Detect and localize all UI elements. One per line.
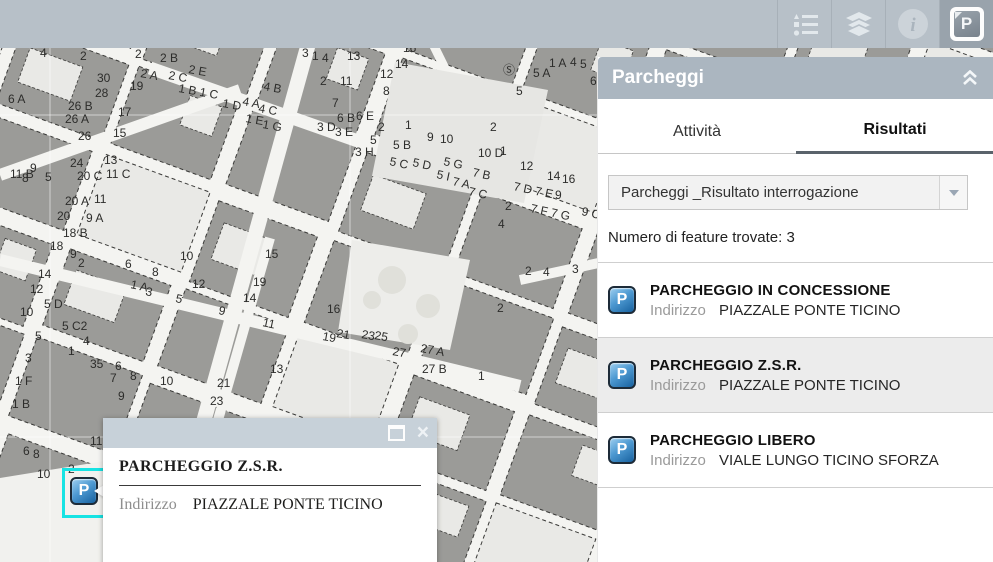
dropdown-button[interactable] — [939, 176, 967, 209]
svg-text:7: 7 — [110, 371, 117, 385]
svg-text:10: 10 — [160, 374, 174, 388]
info-icon: i — [897, 8, 929, 40]
svg-text:9: 9 — [30, 161, 37, 175]
svg-text:10: 10 — [440, 132, 454, 146]
svg-text:21: 21 — [217, 376, 231, 390]
svg-text:16: 16 — [403, 48, 417, 55]
svg-text:15: 15 — [265, 247, 279, 261]
popup-body: PARCHEGGIO Z.S.R. Indirizzo PIAZZALE PON… — [103, 448, 437, 562]
svg-text:6 B: 6 B — [337, 111, 355, 125]
panel-tabs: Attività Risultati — [598, 100, 993, 154]
layers-icon — [845, 11, 873, 37]
svg-text:15: 15 — [113, 126, 127, 140]
svg-text:12: 12 — [30, 282, 44, 296]
map-popup: × PARCHEGGIO Z.S.R. Indirizzo PIAZZALE P… — [103, 418, 437, 562]
toolbar-buttons: i P — [777, 0, 993, 48]
address-value: VIALE LUNGO TICINO SFORZA — [719, 452, 939, 469]
svg-text:5: 5 — [45, 170, 52, 184]
svg-text:13: 13 — [104, 153, 118, 167]
tab-attivita[interactable]: Attività — [598, 100, 796, 154]
svg-text:2: 2 — [505, 199, 512, 213]
svg-text:20: 20 — [57, 209, 71, 223]
result-texts: PARCHEGGIO IN CONCESSIONE Indirizzo PIAZ… — [650, 282, 900, 319]
svg-text:6: 6 — [590, 74, 597, 88]
svg-text:12: 12 — [192, 277, 206, 291]
parking-icon: P — [608, 286, 636, 314]
svg-text:3: 3 — [25, 351, 32, 365]
svg-text:21: 21 — [335, 326, 351, 342]
svg-text:20 C: 20 C — [77, 169, 103, 183]
svg-text:13: 13 — [347, 49, 361, 63]
svg-text:18: 18 — [50, 239, 64, 253]
svg-text:10: 10 — [20, 305, 34, 319]
top-toolbar: i P — [0, 0, 993, 48]
svg-text:4: 4 — [83, 334, 90, 348]
info-button[interactable]: i — [885, 0, 939, 48]
svg-text:20 A: 20 A — [65, 194, 89, 208]
result-texts: PARCHEGGIO Z.S.R. Indirizzo PIAZZALE PON… — [650, 357, 900, 394]
legend-button[interactable] — [777, 0, 831, 48]
svg-text:14: 14 — [243, 291, 257, 305]
svg-text:1: 1 — [68, 344, 75, 358]
svg-text:4: 4 — [543, 265, 550, 279]
svg-text:25: 25 — [373, 328, 389, 344]
tab-risultati[interactable]: Risultati — [796, 100, 993, 154]
svg-text:3: 3 — [572, 262, 579, 276]
address-label: Indirizzo — [650, 377, 706, 394]
address-label: Indirizzo — [650, 452, 706, 469]
panel-title: Parcheggi — [612, 67, 704, 89]
svg-text:7: 7 — [332, 96, 339, 110]
address-value: PIAZZALE PONTE TICINO — [719, 377, 900, 394]
svg-text:2: 2 — [135, 48, 142, 61]
svg-text:3 H: 3 H — [355, 145, 374, 159]
svg-text:12: 12 — [520, 159, 534, 173]
svg-text:16: 16 — [327, 302, 341, 316]
svg-text:Ⓢ: Ⓢ — [503, 63, 515, 77]
svg-text:5: 5 — [580, 57, 587, 71]
result-title: PARCHEGGIO IN CONCESSIONE — [650, 282, 900, 299]
svg-text:3 E: 3 E — [335, 125, 353, 139]
svg-text:2: 2 — [80, 49, 87, 63]
svg-text:26: 26 — [78, 129, 92, 143]
svg-text:30: 30 — [97, 71, 111, 85]
svg-text:5: 5 — [35, 329, 42, 343]
svg-text:8: 8 — [152, 265, 159, 279]
svg-text:28: 28 — [95, 86, 109, 100]
svg-text:5: 5 — [516, 84, 523, 98]
svg-text:11: 11 — [90, 434, 103, 448]
svg-text:2: 2 — [78, 256, 85, 270]
svg-text:19: 19 — [253, 275, 267, 289]
result-texts: PARCHEGGIO LIBERO Indirizzo VIALE LUNGO … — [650, 432, 939, 469]
result-address-row: Indirizzo PIAZZALE PONTE TICINO — [650, 302, 900, 319]
svg-text:1 F: 1 F — [15, 374, 32, 388]
result-item[interactable]: P PARCHEGGIO IN CONCESSIONE Indirizzo PI… — [598, 263, 993, 338]
svg-text:35: 35 — [90, 357, 104, 371]
svg-text:4: 4 — [498, 217, 505, 231]
address-value: PIAZZALE PONTE TICINO — [719, 302, 900, 319]
legend-list-icon — [791, 11, 819, 37]
svg-text:1: 1 — [405, 118, 412, 132]
svg-text:9: 9 — [427, 130, 434, 144]
result-title: PARCHEGGIO Z.S.R. — [650, 357, 900, 374]
svg-text:14: 14 — [395, 57, 409, 71]
results-dropdown-value: Parcheggi _Risultato interrogazione — [609, 176, 939, 209]
svg-text:18 B: 18 B — [63, 226, 88, 240]
svg-text:16: 16 — [562, 172, 576, 186]
chevron-down-icon — [949, 190, 959, 196]
svg-text:23: 23 — [210, 394, 224, 408]
svg-text:1: 1 — [500, 144, 507, 158]
svg-text:3 D: 3 D — [317, 120, 336, 134]
svg-text:9 A: 9 A — [86, 211, 103, 225]
svg-text:8: 8 — [22, 171, 29, 185]
svg-text:i: i — [910, 15, 916, 36]
svg-text:26 A: 26 A — [65, 112, 89, 126]
svg-text:6: 6 — [125, 257, 132, 271]
svg-text:11: 11 — [94, 192, 107, 206]
panel-header: Parcheggi — [598, 57, 993, 99]
svg-text:4: 4 — [570, 55, 577, 69]
svg-text:2 A: 2 A — [139, 66, 159, 83]
chevrons-up-icon — [962, 70, 978, 86]
svg-text:8: 8 — [383, 84, 390, 98]
svg-text:4: 4 — [40, 48, 47, 60]
svg-text:14: 14 — [38, 267, 52, 281]
results-list: P PARCHEGGIO IN CONCESSIONE Indirizzo PI… — [598, 262, 993, 488]
result-item[interactable]: P PARCHEGGIO LIBERO Indirizzo VIALE LUNG… — [598, 413, 993, 488]
parcheggi-panel: Parcheggi Attività Risultati Parcheggi _… — [597, 57, 993, 562]
popup-address-row: Indirizzo PIAZZALE PONTE TICINO — [119, 496, 421, 514]
popup-title: PARCHEGGIO Z.S.R. — [119, 458, 421, 476]
svg-text:2: 2 — [320, 74, 327, 88]
feature-count: Numero di feature trovate: 3 — [608, 229, 984, 246]
close-icon[interactable]: × — [417, 422, 429, 443]
svg-text:3: 3 — [302, 48, 309, 60]
result-address-row: Indirizzo VIALE LUNGO TICINO SFORZA — [650, 452, 939, 469]
result-address-row: Indirizzo PIAZZALE PONTE TICINO — [650, 377, 900, 394]
maximize-icon[interactable] — [388, 425, 405, 441]
svg-text:27: 27 — [391, 344, 407, 360]
address-value: PIAZZALE PONTE TICINO — [193, 496, 383, 513]
svg-text:5 A: 5 A — [533, 66, 550, 80]
svg-text:6 E: 6 E — [356, 109, 374, 123]
svg-text:1 A: 1 A — [549, 56, 566, 70]
svg-text:9: 9 — [70, 247, 77, 261]
svg-text:9: 9 — [118, 389, 125, 403]
svg-text:24: 24 — [70, 156, 84, 170]
parking-icon: P — [608, 361, 636, 389]
parking-tool-icon: P — [950, 7, 984, 41]
svg-text:5 B: 5 B — [393, 138, 411, 152]
svg-text:5 D: 5 D — [44, 297, 63, 311]
svg-text:8: 8 — [130, 369, 137, 383]
svg-text:6 A: 6 A — [8, 92, 25, 106]
svg-text:1: 1 — [478, 369, 485, 383]
results-dropdown[interactable]: Parcheggi _Risultato interrogazione — [608, 175, 968, 210]
parcheggi-tool-button[interactable]: P — [939, 0, 993, 48]
address-label: Indirizzo — [650, 302, 706, 319]
svg-text:4: 4 — [322, 51, 329, 65]
result-item[interactable]: P PARCHEGGIO Z.S.R. Indirizzo PIAZZALE P… — [598, 338, 993, 413]
popup-header: × — [103, 418, 437, 448]
collapse-panel-button[interactable] — [962, 70, 978, 86]
svg-text:2: 2 — [497, 301, 504, 315]
svg-text:2: 2 — [378, 120, 385, 134]
svg-text:19: 19 — [130, 79, 144, 93]
svg-text:2: 2 — [525, 264, 532, 278]
svg-text:10: 10 — [37, 467, 51, 481]
feature-count-label: Numero di feature trovate: — [608, 229, 782, 246]
address-label: Indirizzo — [119, 496, 177, 513]
svg-text:8: 8 — [33, 447, 40, 461]
svg-text:2 B: 2 B — [160, 51, 178, 65]
svg-text:2: 2 — [490, 120, 497, 134]
parking-icon: P — [608, 436, 636, 464]
popup-divider — [119, 485, 421, 486]
feature-count-value: 3 — [786, 229, 794, 246]
svg-text:26 B: 26 B — [68, 99, 93, 113]
gis-viewer-window: 4222 B30281926 B26 A172615241320 C11 C11… — [0, 0, 993, 562]
svg-text:1: 1 — [312, 49, 319, 63]
svg-text:14: 14 — [547, 169, 561, 183]
svg-text:13: 13 — [270, 362, 284, 376]
svg-text:5 C2: 5 C2 — [62, 319, 88, 333]
svg-text:9: 9 — [555, 188, 562, 202]
svg-text:6: 6 — [23, 444, 30, 458]
svg-text:5 I: 5 I — [435, 167, 451, 183]
svg-text:12: 12 — [380, 67, 394, 81]
svg-text:1 B: 1 B — [12, 397, 30, 411]
svg-text:17: 17 — [118, 105, 132, 119]
svg-text:10: 10 — [180, 249, 194, 263]
svg-text:11: 11 — [340, 74, 353, 88]
layers-button[interactable] — [831, 0, 885, 48]
result-title: PARCHEGGIO LIBERO — [650, 432, 939, 449]
svg-text:11 C: 11 C — [106, 167, 131, 181]
svg-text:27 B: 27 B — [422, 362, 447, 376]
